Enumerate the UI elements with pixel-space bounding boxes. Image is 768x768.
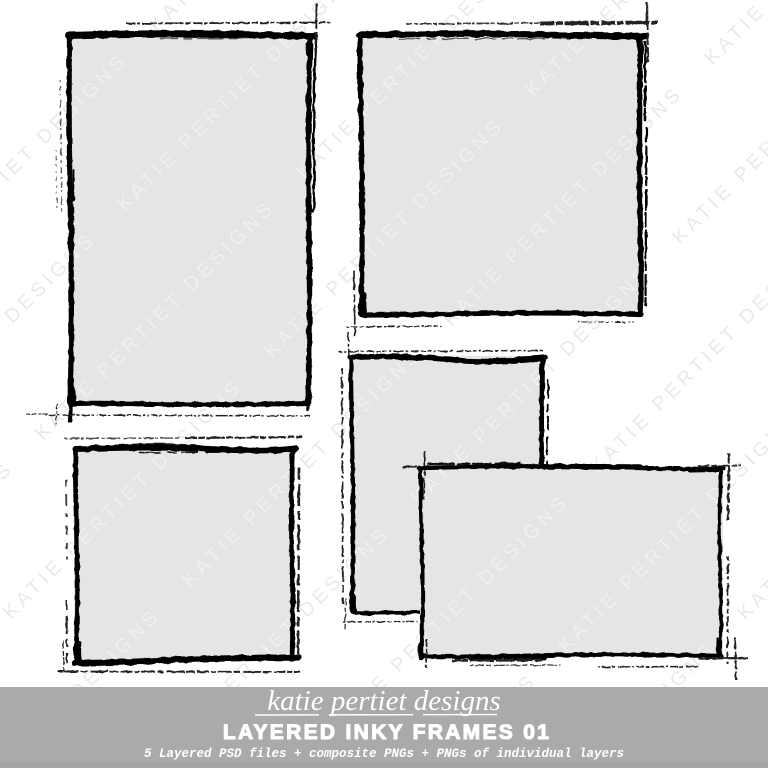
svg-text:LAYERED INKY FRAMES 01: LAYERED INKY FRAMES 01 — [223, 721, 551, 744]
svg-text:katie pertiet designs: katie pertiet designs — [267, 685, 501, 717]
svg-text:5 Layered PSD files + composit: 5 Layered PSD files + composite PNGs + P… — [144, 747, 624, 761]
